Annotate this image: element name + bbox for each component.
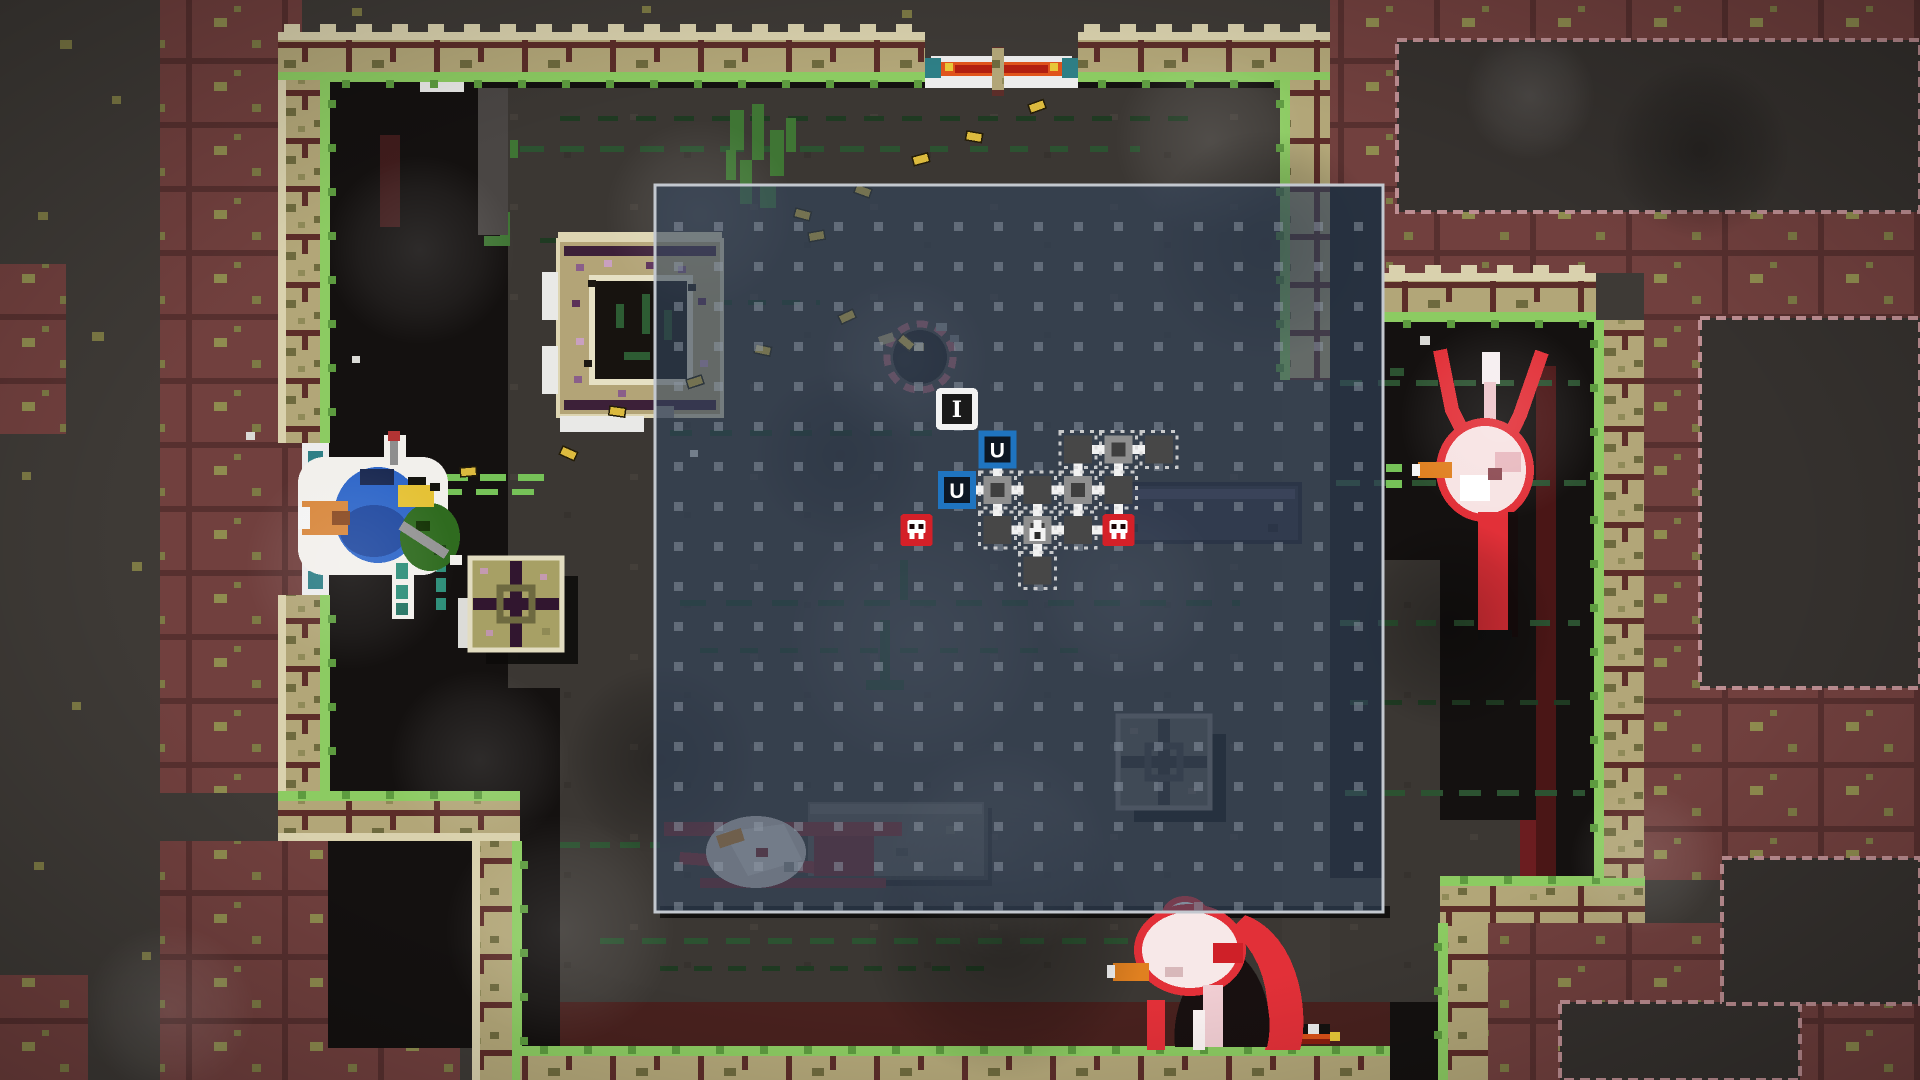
vignette: [0, 0, 1920, 1080]
game-world-canvas[interactable]: IUU: [0, 0, 1920, 1080]
vignette-shade: [0, 0, 1920, 1080]
game-screen: IUU: [0, 0, 1920, 1080]
